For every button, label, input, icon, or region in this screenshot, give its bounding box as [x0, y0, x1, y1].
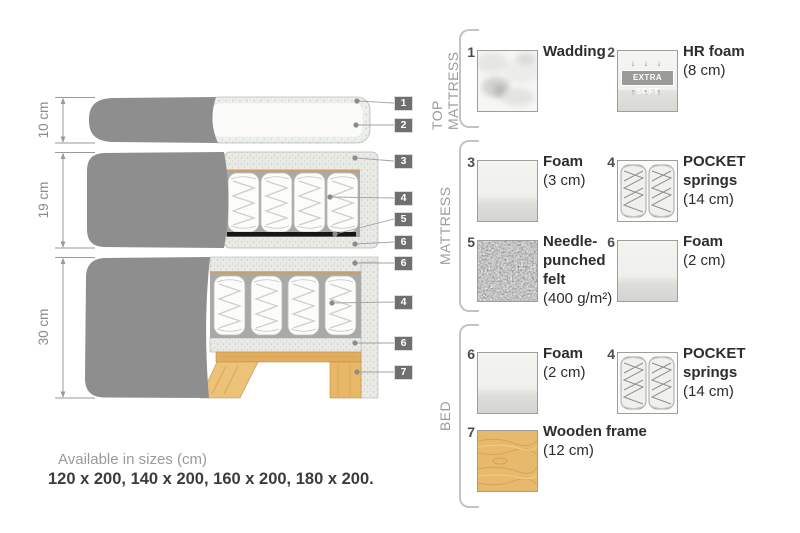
legend-item-wooden-frame: 7 Wooden frame (12 cm) [463, 426, 635, 498]
section-title-top-mattress: TOP MATTRESS [434, 26, 456, 130]
section-title-mattress: MATTRESS [434, 140, 456, 312]
item-name: HR foam [683, 42, 771, 61]
callout-chip-7: 7 [394, 365, 413, 380]
item-number: 2 [603, 44, 615, 60]
arrows-down-icon: ↓ ↓ ↓ [618, 58, 677, 68]
dimension-label-19cm: 19 cm [36, 170, 52, 230]
legend-item-pocket-springs-bed: 4 POCKET sprin [603, 348, 775, 420]
felt-thumbnail [477, 240, 538, 302]
item-detail: (8 cm) [683, 61, 771, 80]
item-name: POCKET springs [683, 344, 771, 382]
legend-item-hr-foam: 2 ↓ ↓ ↓ EXTRA SOFT ↑ ↑ ↑ HR foam (8 cm) [603, 46, 775, 118]
callout-chip-5: 5 [394, 212, 413, 227]
legend-item-pocket-springs: 4 POCKET sprin [603, 156, 775, 228]
callout-chip-6b: 6 [394, 256, 413, 271]
foam-thumbnail [477, 352, 538, 414]
pocket-springs-thumbnail [617, 352, 678, 414]
callout-chip-3: 3 [394, 154, 413, 169]
callout-chip-4b: 4 [394, 295, 413, 310]
item-number: 7 [463, 424, 475, 440]
hr-foam-thumbnail: ↓ ↓ ↓ EXTRA SOFT ↑ ↑ ↑ [617, 50, 678, 112]
item-detail: (14 cm) [683, 382, 771, 401]
section-title-bed: BED [434, 324, 456, 508]
callout-chip-6: 6 [394, 235, 413, 250]
item-detail: (12 cm) [543, 441, 683, 460]
foam-thumbnail [617, 240, 678, 302]
available-sizes-label: Available in sizes (cm) [58, 451, 207, 468]
bed-section [85, 257, 378, 398]
fabric-cover [87, 152, 229, 248]
item-number: 6 [463, 346, 475, 362]
wadding-thumbnail [477, 50, 538, 112]
arrows-up-icon: ↑ ↑ ↑ [618, 87, 677, 97]
item-number: 1 [463, 44, 475, 60]
wood-thumbnail [477, 430, 538, 492]
pocket-springs-thumbnail [617, 160, 678, 222]
callout-chip-6c: 6 [394, 336, 413, 351]
item-name: POCKET springs [683, 152, 771, 190]
item-number: 3 [463, 154, 475, 170]
top-mattress-section [89, 97, 370, 143]
item-number: 5 [463, 234, 475, 250]
item-number: 4 [603, 346, 615, 362]
item-name: Foam [683, 232, 771, 251]
infographic-canvas: 10 cm 19 cm 30 cm 1 2 3 4 5 6 6 4 6 7 TO… [0, 0, 800, 533]
item-number: 6 [603, 234, 615, 250]
item-name: Wooden frame [543, 422, 683, 441]
legend-item-foam-2cm: 6 Foam (2 cm) [603, 236, 775, 308]
foam-thumbnail [477, 160, 538, 222]
callout-chip-4: 4 [394, 191, 413, 206]
wooden-frame [200, 352, 361, 398]
extra-soft-badge: EXTRA SOFT [621, 70, 674, 86]
fabric-cover [89, 97, 218, 143]
item-number: 4 [603, 154, 615, 170]
dimension-label-10cm: 10 cm [36, 90, 52, 150]
callout-chip-1: 1 [394, 96, 413, 111]
item-detail: (2 cm) [683, 251, 771, 270]
fabric-cover [85, 257, 210, 398]
available-sizes-values: 120 x 200, 140 x 200, 160 x 200, 180 x 2… [48, 470, 374, 489]
item-detail: (14 cm) [683, 190, 771, 209]
callout-chip-2: 2 [394, 118, 413, 133]
dimension-label-30cm: 30 cm [36, 297, 52, 357]
